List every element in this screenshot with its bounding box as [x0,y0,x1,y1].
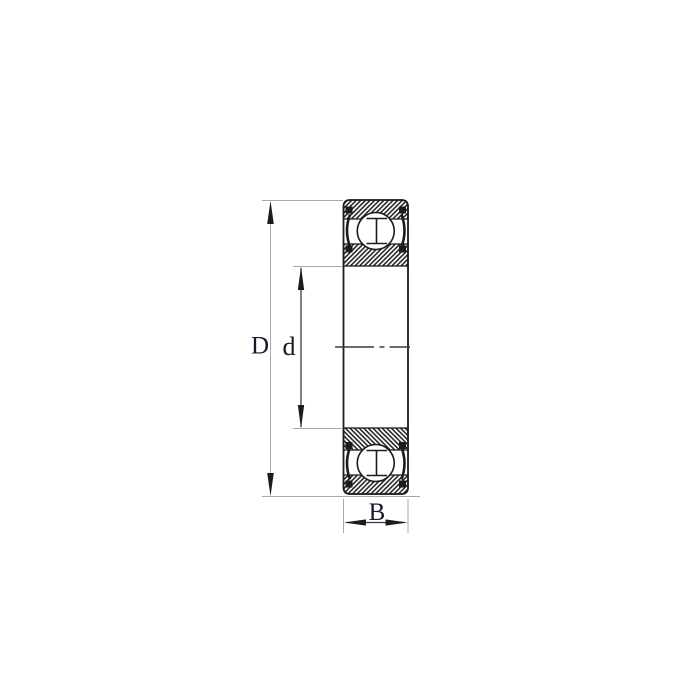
bearing-diagram-canvas: D d B [0,0,700,700]
width-dimension: B [344,499,409,533]
bore-diameter-label: d [283,332,296,361]
dim-arrow-up [298,267,304,290]
dim-arrow-up [267,201,274,224]
dim-arrow-down [298,405,304,428]
bearing-cross-section-svg: D d B [0,0,700,700]
dim-arrow-right [386,519,408,525]
bore-diameter-dimension: d [283,267,344,429]
outer-diameter-label: D [251,333,269,360]
dim-arrow-down [267,473,274,496]
dim-arrow-left [344,519,366,525]
width-label: B [369,499,386,526]
